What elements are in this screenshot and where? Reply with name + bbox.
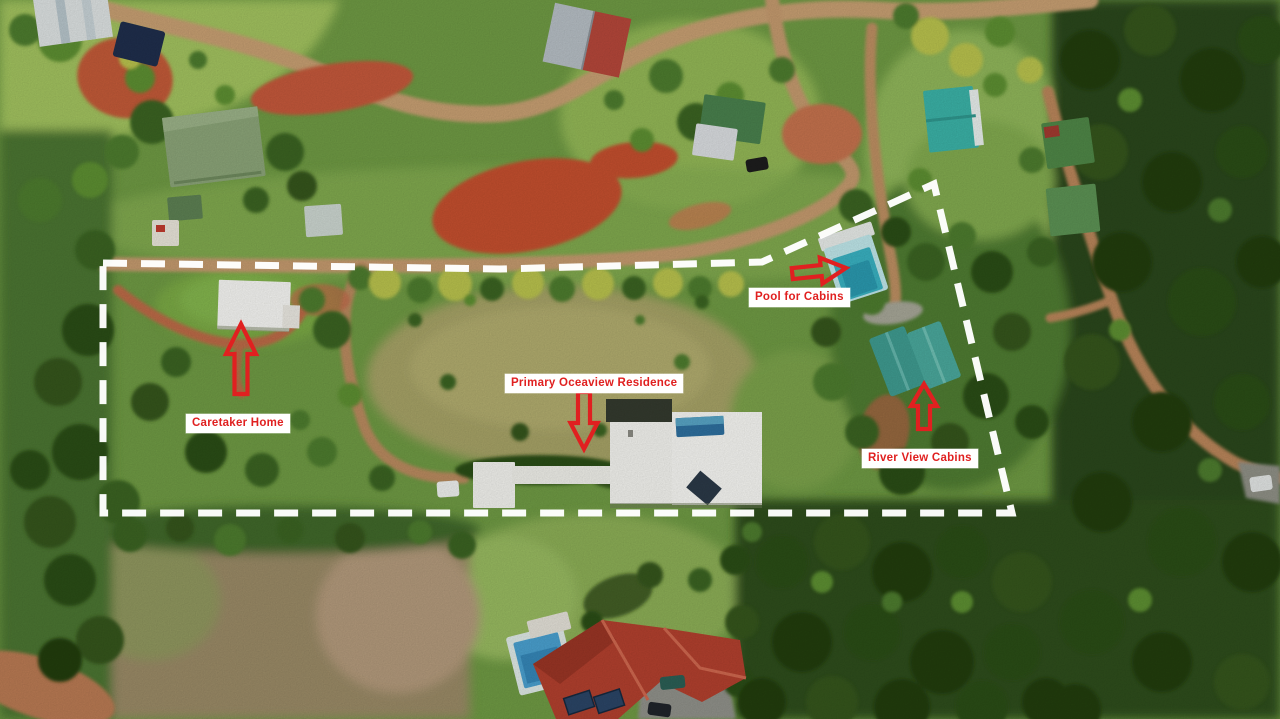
label-primary-residence: Primary Oceaview Residence bbox=[505, 374, 683, 393]
label-caretaker-home: Caretaker Home bbox=[186, 414, 290, 433]
arrow-primary-residence bbox=[571, 392, 598, 449]
label-pool-for-cabins: Pool for Cabins bbox=[749, 288, 850, 307]
annotated-aerial-property-photo: Caretaker Home Primary Oceaview Residenc… bbox=[0, 0, 1280, 719]
label-river-view-cabins: River View Cabins bbox=[862, 449, 978, 468]
arrow-river-view-cabins bbox=[911, 384, 937, 429]
arrow-pool-for-cabins bbox=[791, 255, 847, 287]
annotation-overlay bbox=[0, 0, 1280, 719]
arrow-caretaker-home bbox=[226, 324, 256, 394]
